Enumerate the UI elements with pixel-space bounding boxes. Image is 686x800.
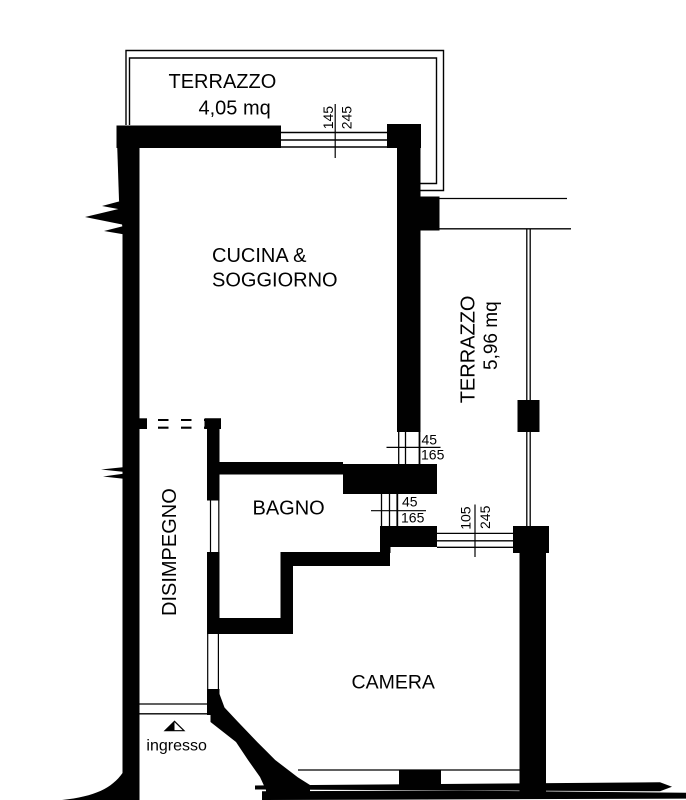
svg-text:CUCINA &: CUCINA & [212, 245, 307, 267]
svg-text:BAGNO: BAGNO [253, 498, 325, 520]
svg-text:245: 245 [477, 505, 493, 529]
svg-text:TERRAZZO: TERRAZZO [457, 296, 479, 404]
svg-text:DISIMPEGNO: DISIMPEGNO [159, 488, 181, 616]
svg-text:245: 245 [339, 106, 355, 130]
svg-text:CAMERA: CAMERA [352, 672, 435, 694]
svg-text:ingresso: ingresso [146, 738, 207, 755]
svg-text:165: 165 [421, 447, 445, 463]
svg-text:165: 165 [401, 510, 425, 526]
svg-text:105: 105 [457, 506, 473, 530]
svg-text:SOGGIORNO: SOGGIORNO [212, 270, 338, 292]
svg-text:45: 45 [422, 432, 438, 448]
svg-text:145: 145 [320, 106, 336, 130]
svg-text:4,05 mq: 4,05 mq [199, 98, 271, 120]
svg-text:45: 45 [402, 493, 418, 509]
svg-text:TERRAZZO: TERRAZZO [169, 71, 277, 93]
svg-text:5,96 mq: 5,96 mq [481, 301, 502, 370]
